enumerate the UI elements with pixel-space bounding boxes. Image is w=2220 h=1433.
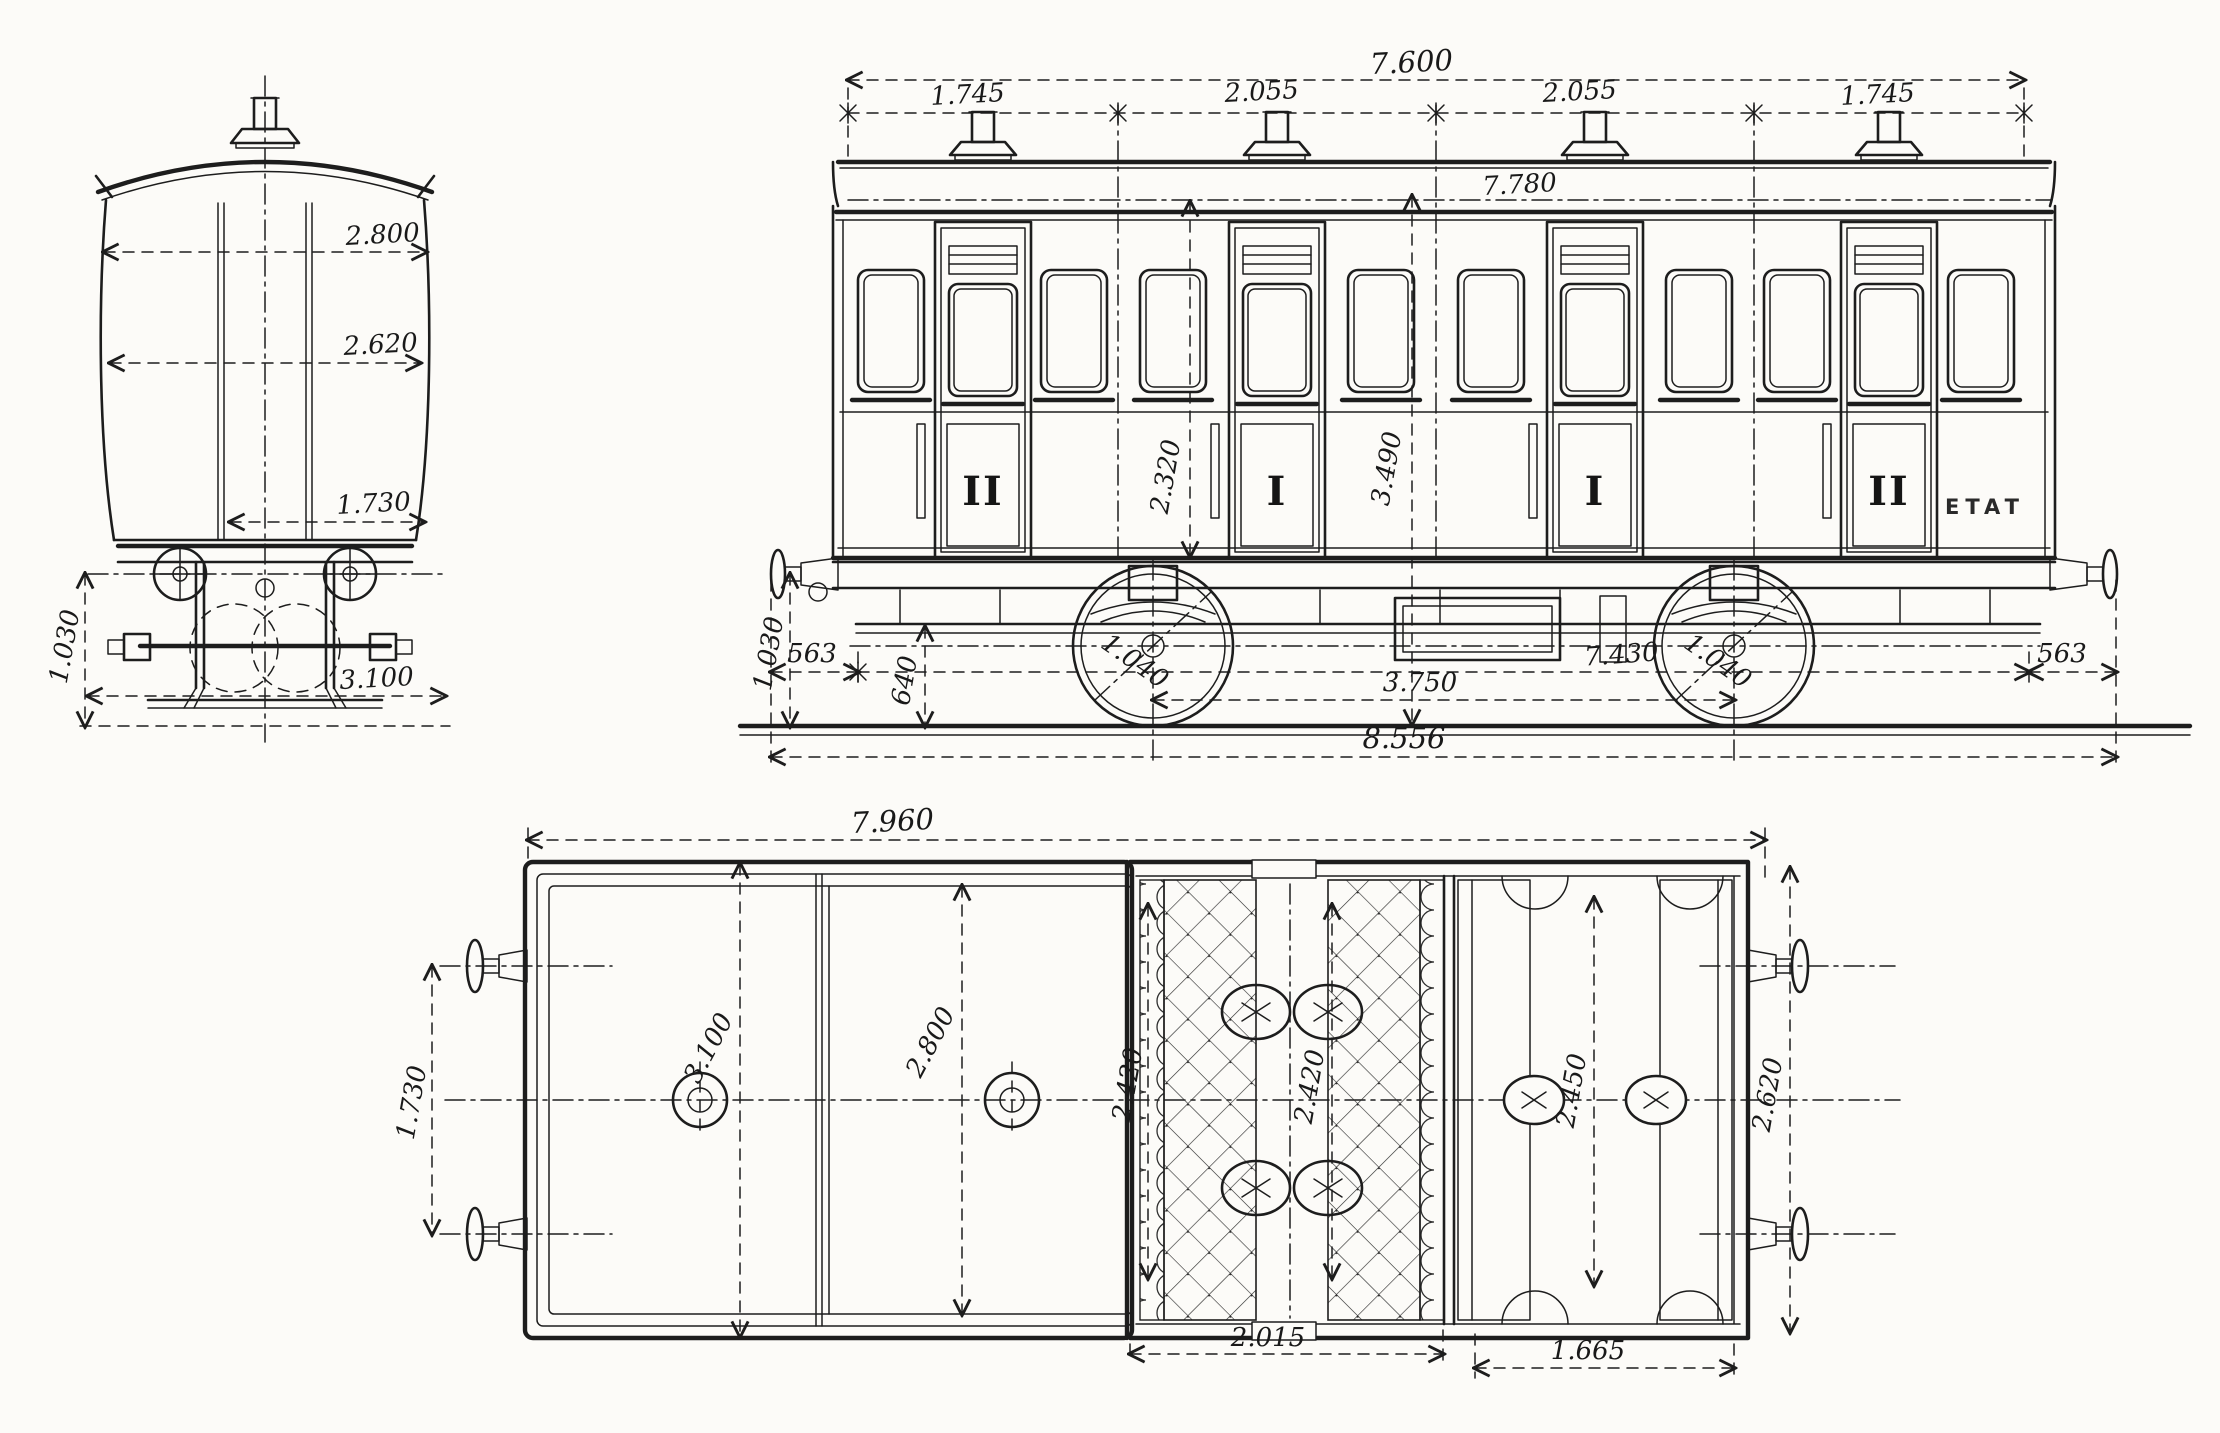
dim-end-width-mid: 2.620 xyxy=(342,328,419,362)
dim-plan-first-width-b: 2.420 xyxy=(1289,1047,1332,1127)
dim-side-overhang-right: 563 xyxy=(2037,639,2087,669)
dim-plan-second-width: 2.450 xyxy=(1551,1051,1594,1131)
dim-side-wheelbase: 3.750 xyxy=(1383,668,1457,698)
dim-side-bay-2: 2.055 xyxy=(1223,75,1300,109)
side-window-1 xyxy=(852,270,930,400)
underframe xyxy=(740,562,2190,735)
class-label-2: I xyxy=(1267,468,1288,515)
class-label-4: II xyxy=(1868,468,1909,515)
end-buffer-left xyxy=(154,548,206,600)
tufted-seat-right xyxy=(1328,880,1420,1320)
dim-end-width-lower: 1.730 xyxy=(336,487,412,521)
dim-end-width-top: 2.800 xyxy=(344,218,421,252)
door-arc-bottom xyxy=(1502,1291,1723,1324)
dim-side-overall-length: 8.556 xyxy=(1362,721,1445,755)
side-elevation-view: 7.600 1.745 2.055 2.055 1.745 7.780 xyxy=(740,43,2190,765)
dim-plan-body-width: 2.800 xyxy=(900,1002,962,1083)
end-body-side-left xyxy=(101,200,114,540)
side-window-4 xyxy=(1342,270,1420,400)
dim-plan-body-width-right: 2.620 xyxy=(1747,1055,1790,1135)
side-window-2 xyxy=(1035,270,1113,400)
dim-side-door-height: 2.320 xyxy=(1145,437,1188,517)
side-window-3 xyxy=(1134,270,1212,400)
dim-side-body-height: 3.490 xyxy=(1366,429,1408,508)
dim-plan-buffer-spacing: 1.730 xyxy=(391,1063,433,1142)
tufted-seat-left xyxy=(1164,880,1256,1320)
dim-plan-first-length: 2.015 xyxy=(1230,1323,1305,1353)
door-arc-top xyxy=(1502,876,1723,909)
dim-side-frame-length: 7.430 xyxy=(1583,637,1659,672)
grab-rail-3 xyxy=(1529,424,1537,518)
dim-side-bay-4: 1.745 xyxy=(1840,78,1916,112)
technical-drawing: 2.800 2.620 1.730 3.100 1.030 7.600 1.74… xyxy=(0,0,2220,1433)
end-body-side-right xyxy=(416,200,429,540)
dim-plan-second-length: 1.665 xyxy=(1551,1336,1625,1366)
plan-view: 1.730 3.100 2.800 7.960 xyxy=(391,802,1900,1378)
side-window-8 xyxy=(1942,270,2020,400)
door-opening-top xyxy=(1252,860,1316,878)
side-buffer-left xyxy=(771,550,838,598)
class-label-1: II xyxy=(962,468,1003,515)
roof-ventilator-2 xyxy=(1244,112,1310,160)
dim-side-overhang-left: 563 xyxy=(787,639,837,669)
side-window-6 xyxy=(1660,270,1738,400)
end-elevation-view: 2.800 2.620 1.730 3.100 1.030 xyxy=(44,76,450,742)
roof-ventilator-3 xyxy=(1562,112,1628,160)
seat-trim-right xyxy=(1420,880,1444,1320)
seat-trim-left xyxy=(1140,880,1164,1320)
dim-side-bay-3: 2.055 xyxy=(1541,75,1618,109)
side-roof: 7.780 xyxy=(833,162,2055,220)
dim-side-bay-1: 1.745 xyxy=(930,78,1006,112)
dim-side-total-7600: 7.600 xyxy=(1369,43,1454,81)
owner-mark-etat: ETAT xyxy=(1945,495,2025,519)
dim-end-buffer-height: 1.030 xyxy=(44,607,86,686)
drawing-sheet: 2.800 2.620 1.730 3.100 1.030 7.600 1.74… xyxy=(0,0,2220,1433)
roof-ventilator-1 xyxy=(950,112,1016,160)
grab-rail-2 xyxy=(1211,424,1219,518)
class-label-3: I xyxy=(1585,468,1606,515)
dim-plan-roof-length: 7.960 xyxy=(850,802,935,840)
dim-side-body-length-7780: 7.780 xyxy=(1482,168,1558,202)
drawhook-left xyxy=(809,583,827,601)
side-window-5 xyxy=(1452,270,1530,400)
roof-ventilator-4 xyxy=(1856,112,1922,160)
end-buffer-right xyxy=(324,548,376,600)
grab-rail-1 xyxy=(917,424,925,518)
side-buffer-right xyxy=(2050,550,2117,598)
dim-side-step-height: 640 xyxy=(886,654,924,708)
dim-side-buffer-height: 1.030 xyxy=(748,614,790,693)
dim-plan-roof-width: 3.100 xyxy=(678,1008,739,1088)
grab-rail-4 xyxy=(1823,424,1831,518)
side-window-7 xyxy=(1758,270,1836,400)
interior-plan: 2.420 2.420 2.450 2.620 2.015 1.665 xyxy=(1107,860,1790,1378)
dim-end-base-width: 3.100 xyxy=(339,662,415,696)
dim-side-wheel-right: 1.040 xyxy=(1678,628,1756,695)
compartment-partition-lines xyxy=(1118,105,1754,560)
